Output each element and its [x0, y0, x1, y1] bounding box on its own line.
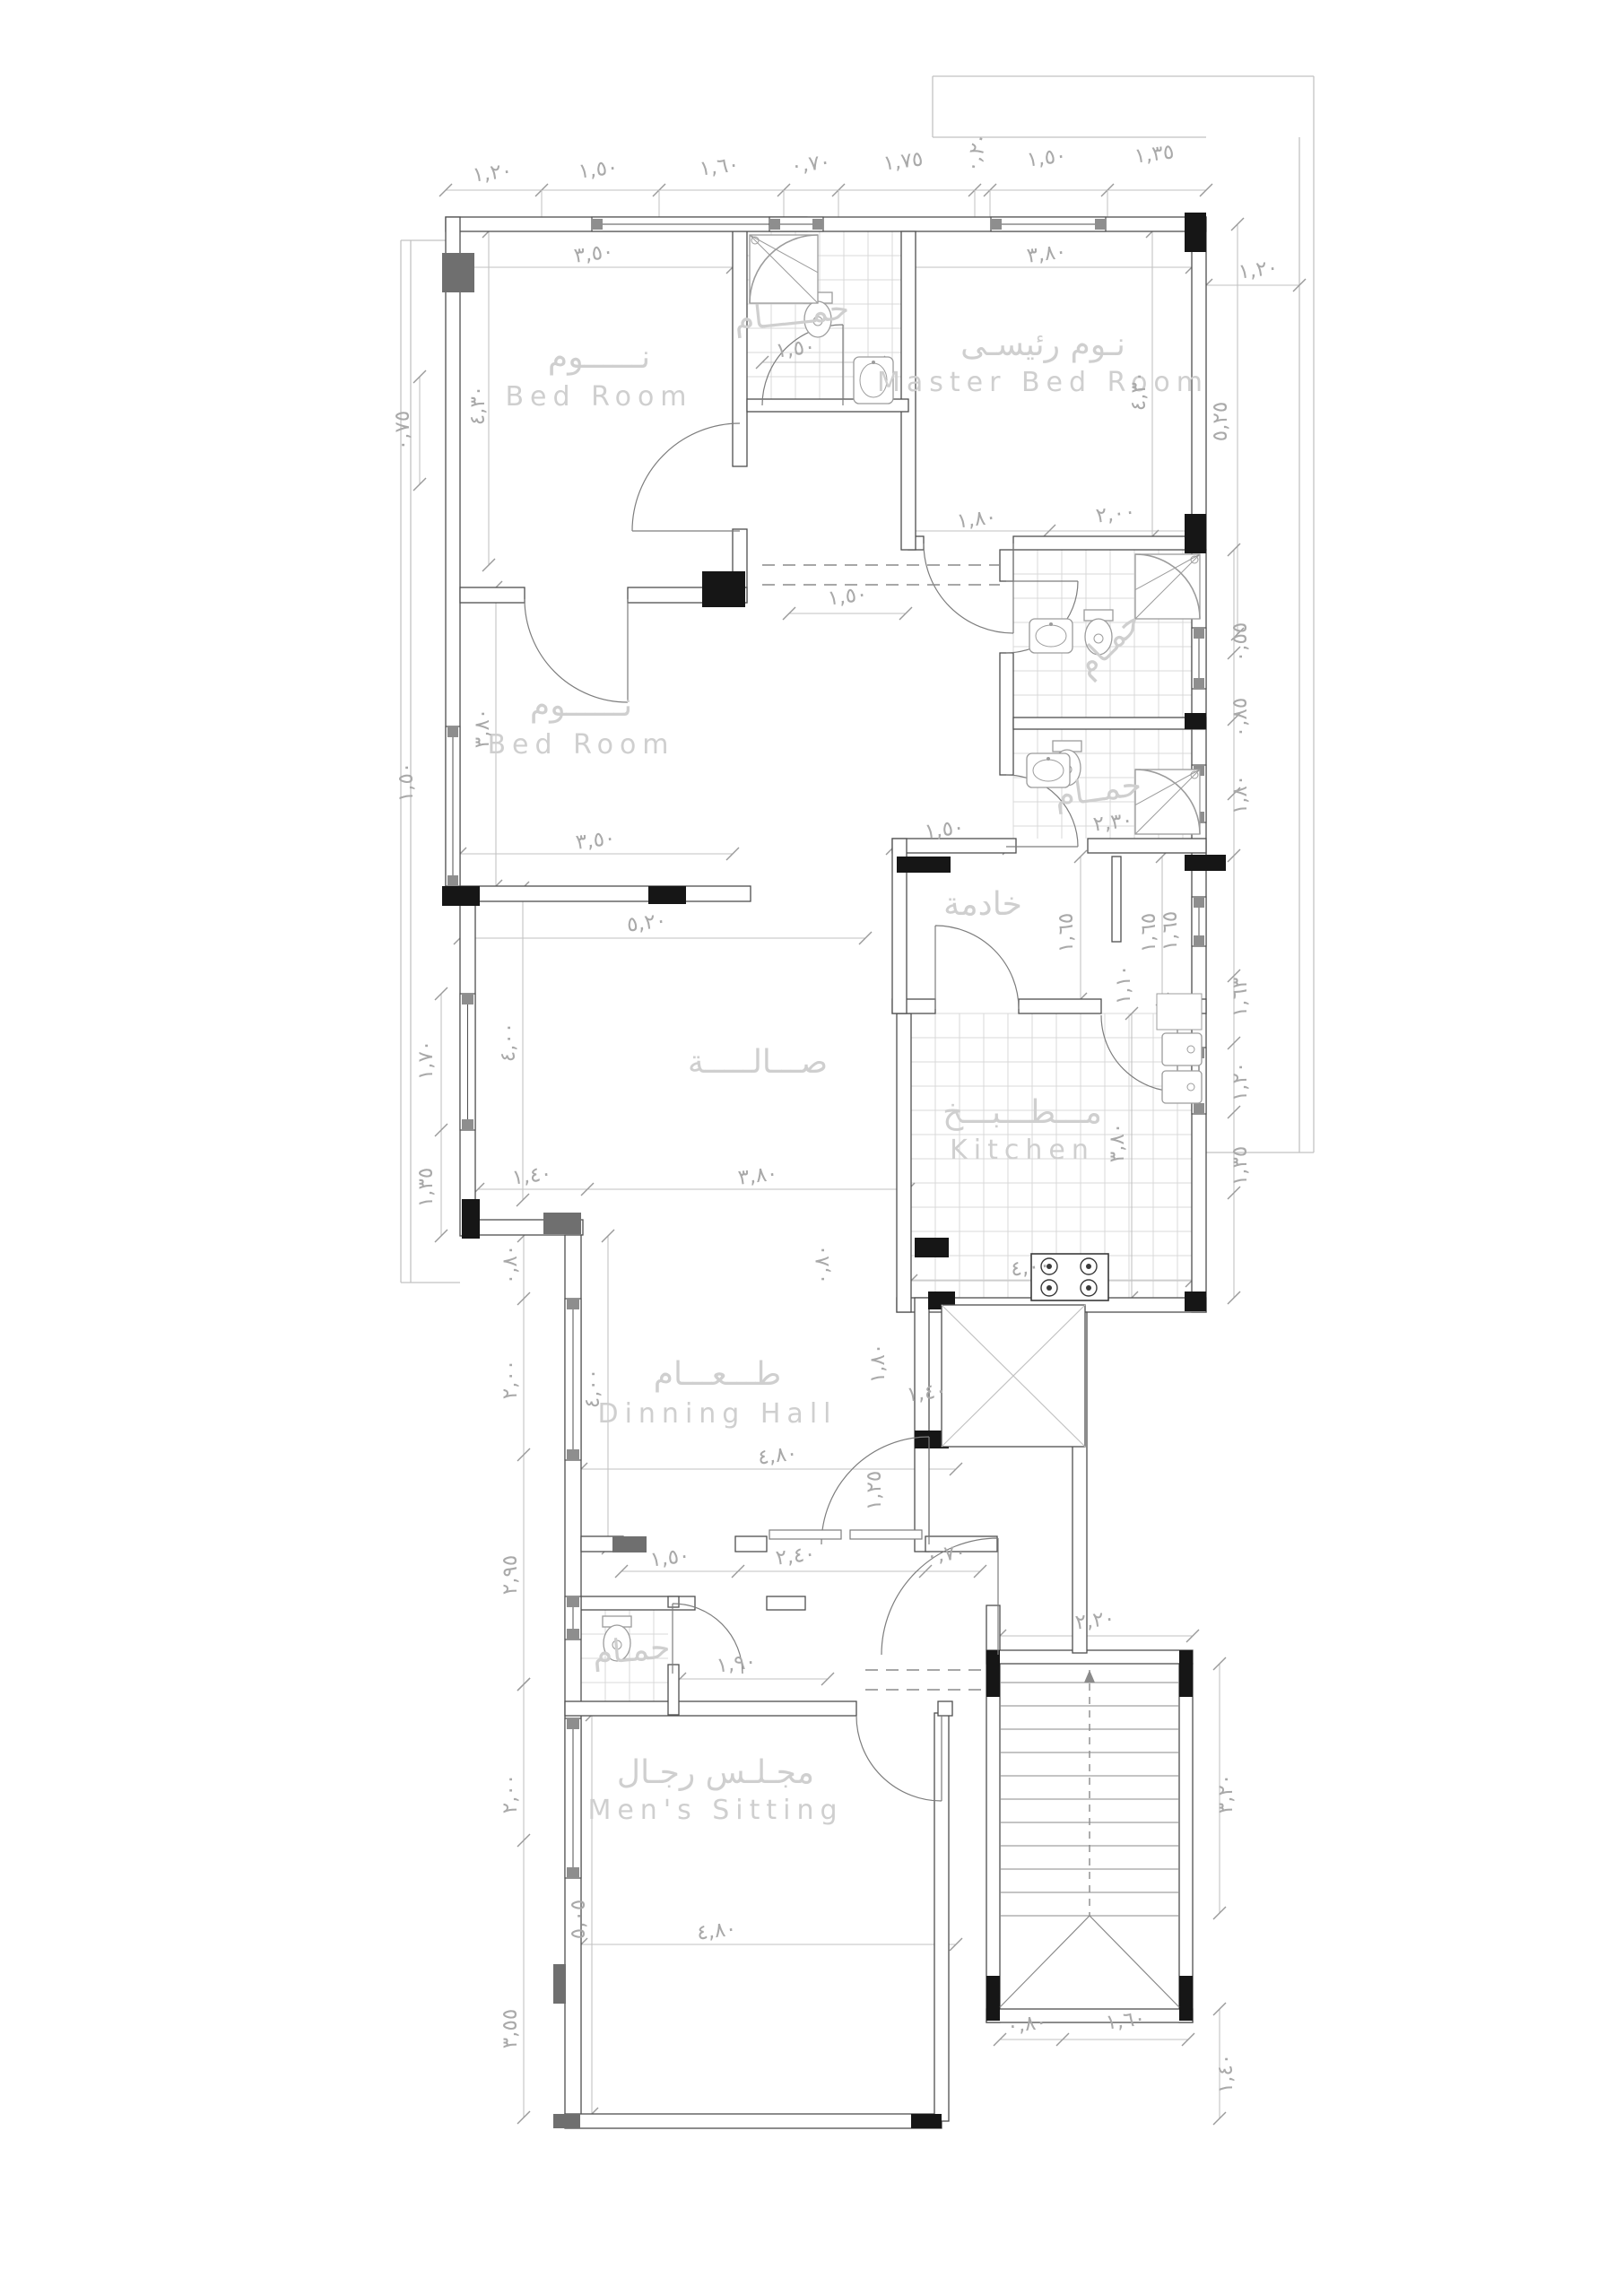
- column: [648, 886, 686, 904]
- floor-plan-canvas: نــــــومBed Roomنـوم رئيسـىMaster Bed R…: [0, 0, 1624, 2296]
- dimension-label: ٠,٥٥: [1229, 622, 1252, 662]
- room-label-master-bedroom: نـوم رئيسـى: [960, 326, 1125, 363]
- dimension-label: ١,٥٠: [775, 335, 817, 362]
- dimension-label: ٢,٩٥: [499, 1555, 522, 1595]
- column: [1185, 514, 1206, 553]
- column: [897, 857, 951, 873]
- dimension-label: ١,٨٠: [866, 1344, 890, 1383]
- dimension-label: ٢,٤٠: [775, 1542, 817, 1570]
- window: [460, 994, 475, 1130]
- dimension-label: ١,٦٠: [699, 152, 741, 180]
- window: [1192, 628, 1206, 689]
- wall-segment: [1019, 999, 1101, 1013]
- dimension-label: ٠,٧٥: [391, 411, 414, 450]
- plot-boundary-line: [933, 76, 1314, 137]
- column-gray: [543, 1213, 581, 1234]
- column: [986, 1650, 1000, 1697]
- window: [565, 1299, 581, 1460]
- room-label-bedroom-2: نــــــوم: [530, 687, 632, 724]
- column: [1185, 213, 1206, 252]
- dimension-label: ١,٦٣: [1229, 978, 1252, 1017]
- column-gray: [553, 2114, 580, 2128]
- dimension-label: ١,٥٠: [924, 815, 966, 843]
- room-label-master-bedroom-en: Master Bed Room: [877, 367, 1209, 398]
- column: [442, 886, 480, 906]
- dimension-label: ١,٦٠: [1105, 2006, 1147, 2034]
- column: [1179, 1650, 1193, 1697]
- dimension-label: ٠,٨٠: [811, 1245, 834, 1284]
- dimension-label: ٤,٠٠: [497, 1022, 520, 1062]
- wall-segment: [1000, 550, 1013, 581]
- room-label-maid-room: خادمة: [943, 886, 1022, 923]
- dimension-line: [673, 1673, 834, 1685]
- dimension-label: ١,٦٥: [1159, 911, 1182, 951]
- column: [462, 1199, 480, 1239]
- wall-segment: [1179, 1664, 1193, 2022]
- wall-segment: [892, 839, 1016, 853]
- wall-segment: [938, 1701, 952, 1716]
- dimension-label: ١,٢٠: [1229, 1062, 1252, 1101]
- room-label-mens-sitting-en: Men's Sitting: [587, 1795, 843, 1826]
- tile-layer: [581, 231, 1192, 1701]
- dimension-label: ٤,٠٠: [581, 1369, 604, 1408]
- column: [1179, 1976, 1193, 2021]
- column: [986, 1976, 1000, 2021]
- wall-segment: [1013, 717, 1206, 729]
- dimension-label: ١,٧٠: [414, 1040, 438, 1080]
- window: [769, 217, 823, 231]
- dimension-line: [517, 1230, 530, 1691]
- door-swing: [856, 1716, 942, 1801]
- dimension-label: ١,٣٥: [414, 1168, 438, 1207]
- dimension-label: ١,٦٥: [1055, 913, 1078, 952]
- dimension-label: ٢,٣٠: [1092, 808, 1134, 836]
- dimension-label: ١,٥٠: [395, 762, 418, 802]
- stairs-layer: [1000, 1670, 1179, 2007]
- column-gray: [553, 1964, 566, 2004]
- window: [1192, 897, 1206, 946]
- kitchen-sink-icon: [1162, 1033, 1202, 1065]
- room-label-hall: صـــالـــــة: [688, 1044, 828, 1081]
- column: [1185, 713, 1206, 729]
- wall-segment: [668, 1596, 679, 1607]
- wall-segment: [733, 231, 747, 466]
- plot-boundary-line: [1206, 76, 1314, 1152]
- kitchen-sink-icon: [1162, 1071, 1202, 1103]
- dimension-label: ١,٩٠: [716, 1649, 758, 1677]
- column: [1185, 1291, 1206, 1311]
- dimension-label: ١,٧٥: [882, 147, 925, 175]
- dimension-label: ٣,٨٠: [1026, 239, 1068, 267]
- dimension-label: ٥,٠٥: [567, 1900, 590, 1939]
- dimension-label: ٥,٢٠: [626, 909, 668, 936]
- dimension-label: ١,٤٠: [906, 1378, 948, 1406]
- dimension-line: [413, 370, 426, 491]
- column: [911, 2114, 942, 2128]
- dimension-label: ١,٢٠: [1238, 256, 1280, 283]
- dimension-label: ٢,٠٠: [499, 1774, 522, 1813]
- dimension-label: ٣,٨٠: [1106, 1123, 1129, 1162]
- window: [565, 1596, 581, 1639]
- dimension-label: ١,١٠: [1112, 965, 1135, 1004]
- shower-icon: [1135, 554, 1200, 619]
- wall-segment: [986, 1650, 1193, 1664]
- wall-segment: [565, 2114, 942, 2128]
- wall-segment: [668, 1665, 679, 1715]
- dimension-label: ١,٨٠: [956, 505, 998, 533]
- room-label-mens-sitting: مجـلـس رجـال: [617, 1754, 814, 1791]
- room-label-kitchen: مـــطـــبـــخ: [942, 1094, 1102, 1131]
- wall-segment: [1013, 536, 1192, 550]
- door-leaf: [769, 1530, 841, 1539]
- column: [702, 571, 745, 607]
- window: [991, 217, 1106, 231]
- column-gray: [442, 253, 474, 292]
- dimension-label: ٠,٨٠: [499, 1245, 522, 1284]
- dimension-label: ٠,٨٠: [1006, 2010, 1048, 2038]
- dimension-label: ١,٣٥: [1133, 140, 1176, 168]
- dimension-label: ١,٨٠: [1229, 775, 1252, 814]
- dimension-label: ٣,٨٠: [471, 709, 494, 748]
- dimension-label: ١,٦٥: [1137, 913, 1160, 952]
- sink-icon: [1029, 619, 1073, 653]
- dimension-label: ٤,٨٠: [757, 1441, 799, 1469]
- dimension-label: ١,٥٠: [1026, 143, 1068, 171]
- door-swing: [935, 926, 1019, 1009]
- column: [1185, 855, 1226, 871]
- floor-plan-drawing: نــــــومBed Roomنـوم رئيسـىMaster Bed R…: [0, 0, 1624, 2296]
- dimension-label: ٥,٢٥: [1209, 402, 1232, 441]
- dimension-label: ٢,٠٠: [1095, 500, 1137, 527]
- room-label-bedroom-2-en: Bed Room: [487, 729, 674, 761]
- dimension-line: [439, 184, 1212, 196]
- room-label-wc: حمـام: [591, 1629, 672, 1672]
- dimension-label: ٢,٢٠: [1074, 1606, 1116, 1634]
- dimension-label: ١,٢٥: [863, 1471, 886, 1510]
- column-layer: [442, 213, 1226, 2128]
- room-label-kitchen-en: Kitchen: [950, 1135, 1095, 1166]
- column: [915, 1238, 949, 1257]
- dimension-label: ٣,٥٠: [575, 826, 617, 854]
- dimension-label: ٤,٣٠: [466, 386, 490, 425]
- door-leaf: [850, 1530, 922, 1539]
- dimension-label: ١,٣٥: [1229, 1146, 1252, 1186]
- room-label-bedroom-1-en: Bed Room: [505, 381, 692, 413]
- wall-segment: [897, 1013, 911, 1312]
- room-label-dining-hall-en: Dinning Hall: [597, 1398, 837, 1430]
- dimension-label: ٤,٣٠: [1127, 371, 1151, 411]
- dimension-line: [783, 607, 912, 620]
- shaft: [942, 1305, 1085, 1447]
- dimension-label: ١,٥٠: [827, 582, 869, 610]
- dimension-label: ١,٤٠: [1214, 2054, 1238, 2093]
- dimension-line: [575, 1938, 962, 1951]
- dimension-line: [517, 1678, 530, 2124]
- window: [565, 1718, 581, 1878]
- dimension-label: ٣,٥٠: [573, 239, 615, 267]
- staircase: [1000, 1670, 1179, 2007]
- room-label-dining-hall: طـــعـــام: [654, 1356, 782, 1393]
- kitchen-counter: [1157, 994, 1202, 1030]
- dimension-line: [454, 932, 872, 944]
- dimension-label: ١,٢٠: [472, 159, 514, 187]
- wall-segment: [446, 886, 751, 901]
- window: [446, 726, 460, 886]
- dimension-label: ٢,٠٠: [499, 1360, 522, 1399]
- dimension-label: ٠,٧٠: [790, 150, 832, 178]
- dimension-label: ٤,٠٠: [1010, 1253, 1052, 1281]
- wall-segment: [565, 1701, 856, 1716]
- dimension-label: ٠,٧٠: [925, 1540, 968, 1568]
- wall-segment: [1088, 839, 1206, 853]
- room-label-bedroom-1: نــــــوم: [548, 339, 650, 376]
- door-swing: [632, 423, 740, 531]
- dimension-label: ١,٥٠: [649, 1544, 691, 1571]
- dimension-label: ١,٤٠: [511, 1161, 553, 1189]
- dimension-label: ١,٥٠: [578, 155, 620, 183]
- wall-segment: [735, 1536, 767, 1552]
- dimension-label: ٤,٨٠: [696, 1917, 738, 1944]
- column-gray: [612, 1536, 647, 1552]
- wall-segment: [767, 1596, 805, 1610]
- shower-icon: [750, 235, 818, 303]
- dimension-label: ٣,٨٠: [737, 1161, 779, 1189]
- dimension-label: ٣,٢٠: [1214, 1774, 1238, 1813]
- wall-segment: [460, 587, 525, 603]
- wall-segment: [915, 1298, 929, 1552]
- wall-layer: [446, 217, 1206, 2128]
- wall-segment: [1112, 857, 1121, 942]
- dimension-line-layer: [413, 184, 1306, 2125]
- dimension-label: ٠,٨٥: [1229, 698, 1252, 737]
- shower-icon: [1135, 770, 1200, 834]
- dimension-label: ٣,٥٥: [499, 2009, 522, 2048]
- wall-segment: [1000, 653, 1013, 775]
